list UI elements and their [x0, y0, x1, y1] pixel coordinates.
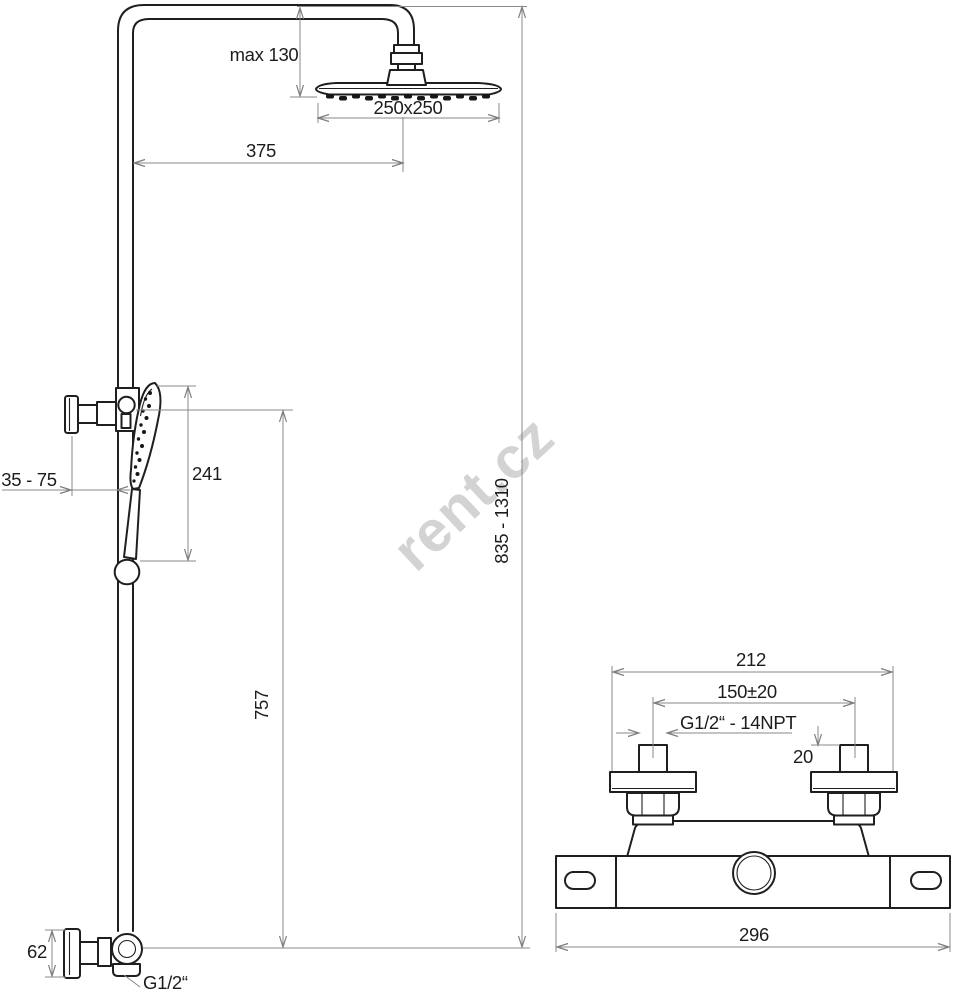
svg-text:max 130: max 130 — [230, 44, 299, 65]
dim-slide-bar-length: 757 — [136, 410, 293, 947]
svg-text:62: 62 — [27, 941, 47, 962]
svg-text:150±20: 150±20 — [717, 681, 777, 702]
mixer-view — [556, 745, 950, 908]
mixer-upper-body — [627, 821, 869, 857]
dim-body-mounting-width: 296 — [556, 913, 950, 952]
dim-arm-reach: 375 — [134, 140, 403, 167]
svg-text:835 - 1310: 835 - 1310 — [491, 478, 512, 563]
upper-wall-bracket — [65, 396, 117, 433]
shower-system-dimension-drawing: rent.cz — [0, 0, 955, 992]
svg-text:G1/2“ - 14NPT: G1/2“ - 14NPT — [680, 712, 796, 733]
mixer-center-outlet — [733, 852, 775, 894]
mixer-left-bracket — [556, 856, 616, 908]
dim-head-size: 250x250 — [318, 97, 499, 172]
svg-text:212: 212 — [736, 649, 766, 670]
slide-bar-end-ball — [115, 560, 140, 585]
svg-text:20: 20 — [793, 746, 813, 767]
svg-text:375: 375 — [246, 140, 276, 161]
svg-text:296: 296 — [739, 924, 769, 945]
svg-text:241: 241 — [192, 463, 222, 484]
svg-text:G1/2“: G1/2“ — [143, 972, 188, 992]
mixer-right-bracket — [890, 856, 950, 908]
dim-head-clearance: max 130 — [230, 8, 317, 97]
overhead-shower-head — [316, 45, 501, 101]
label-mixer-inlet-thread: G1/2“ - 14NPT — [616, 712, 796, 737]
dim-inlet-elbow-height: 62 — [27, 930, 66, 977]
svg-text:250x250: 250x250 — [374, 97, 443, 118]
watermark-text: rent.cz — [380, 403, 566, 583]
dim-bracket-wall-distance: 35 - 75 — [1, 436, 130, 496]
mixer-right-inlet — [811, 745, 897, 825]
bottom-supply-elbow — [64, 929, 142, 978]
svg-text:35 - 75: 35 - 75 — [1, 469, 57, 490]
svg-text:757: 757 — [251, 690, 272, 720]
dim-inlet-square: 20 — [793, 726, 840, 767]
technical-drawing-page: rent.cz — [0, 0, 955, 992]
